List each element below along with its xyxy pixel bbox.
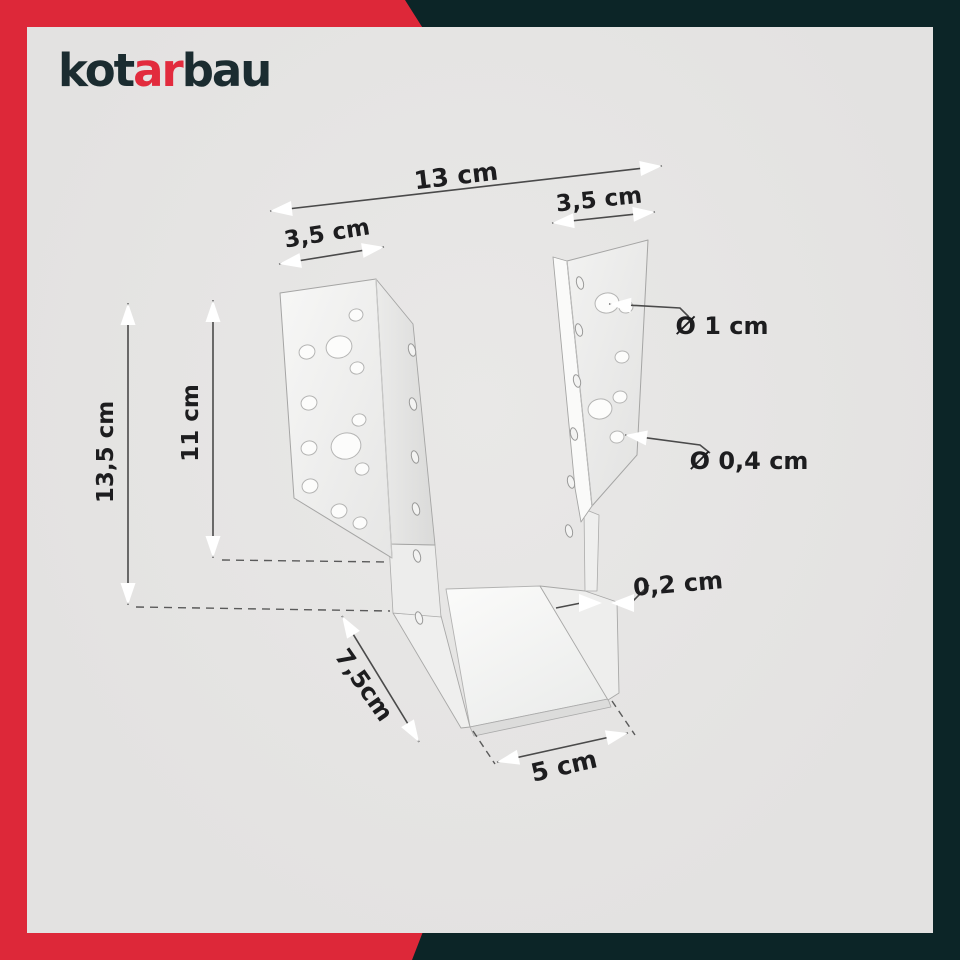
right-neck-web [584,509,599,591]
dashed-line-11cm [222,560,388,562]
label-small-hole-diameter: Ø 0,4 cm [690,447,809,475]
joist-hanger-diagram-svg [0,0,960,960]
label-large-hole-diameter: Ø 1 cm [675,312,768,340]
dashed-line-5cm-left [473,731,495,764]
label-flange-height: 11 cm [178,384,204,462]
dashed-line-13-5cm [136,607,390,611]
product-image-page: kotarbau [0,0,960,960]
label-total-height: 13,5 cm [93,401,119,503]
dashed-line-5cm-right [612,701,635,735]
